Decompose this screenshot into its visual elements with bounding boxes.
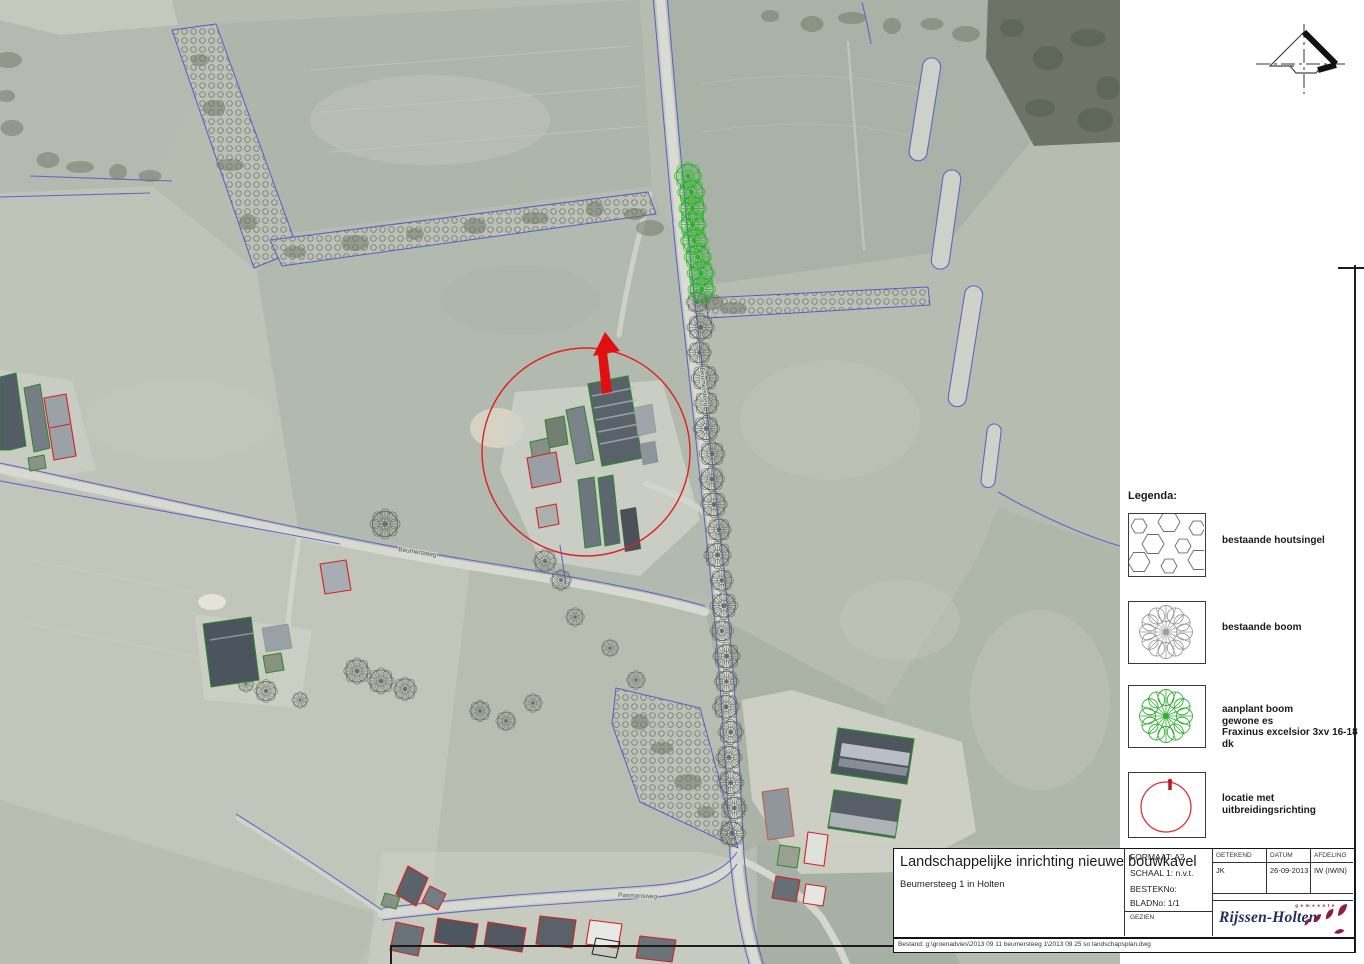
dept-header: AFDELING	[1314, 852, 1347, 859]
date-header: DATUM	[1270, 852, 1293, 859]
date-value: 26-09-2013	[1270, 866, 1308, 875]
legend-label-new-tree: aanplant boom gewone es Fraxinus excelsi…	[1222, 704, 1360, 750]
drawing-sheet: Beumersteeg Beumersteeg Pasmansweg Legen…	[0, 0, 1364, 964]
gezien-label: GEZIEN	[1130, 914, 1154, 921]
title-block: Landschappelijke inrichting nieuwe bouwk…	[893, 848, 1355, 938]
file-path-strip: Bestand: g:\groenadvies\2013 09 11 beume…	[893, 938, 1355, 953]
legend-symbol-new-tree	[1128, 685, 1206, 748]
sheet-field: BLADNo: 1/1	[1130, 898, 1180, 908]
drawing-title: Landschappelijke inrichting nieuwe bouwk…	[900, 854, 1197, 870]
sheet-border-tick-bottom	[390, 945, 392, 964]
legend-symbol-existing-tree	[1128, 601, 1206, 664]
drawn-header: GETEKEND	[1216, 852, 1252, 859]
legend-symbol-location	[1128, 772, 1206, 838]
drawing-subtitle: Beumersteeg 1 in Holten	[900, 879, 1005, 890]
legend-label-location: locatie met uitbreidingsrichting	[1222, 793, 1360, 816]
bestek-field: BESTEKNo:	[1130, 884, 1177, 894]
legend-symbol-hedgerow	[1128, 513, 1206, 577]
legend-label-hedgerow: bestaande houtsingel	[1222, 535, 1360, 547]
logo-petals-icon	[1303, 902, 1351, 936]
svg-text:Pasmansweg: Pasmansweg	[618, 892, 658, 900]
sheet-border-bottom	[390, 945, 893, 947]
drawn-value: JK	[1216, 866, 1225, 875]
dept-value: IW (IWIN)	[1314, 866, 1347, 875]
sheet-border-tick-right	[1338, 267, 1364, 269]
legend-label-existing-tree: bestaande boom	[1222, 622, 1360, 634]
aerial-site-map: Beumersteeg Beumersteeg Pasmansweg	[0, 0, 1120, 964]
north-arrow-icon	[1252, 20, 1352, 98]
municipality-logo: gemeente Rijssen-Holten	[1212, 900, 1353, 936]
legend-title: Legenda:	[1128, 490, 1177, 502]
file-path: Bestand: g:\groenadvies\2013 09 11 beume…	[898, 941, 1151, 948]
